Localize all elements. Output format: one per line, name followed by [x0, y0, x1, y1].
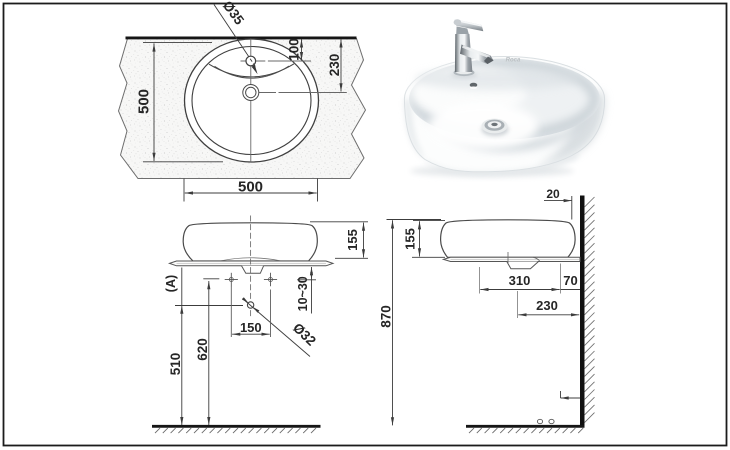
svg-text:510: 510	[168, 353, 183, 376]
svg-text:10~30: 10~30	[296, 276, 310, 311]
svg-text:230: 230	[327, 54, 342, 77]
svg-text:(A): (A)	[164, 275, 178, 292]
svg-text:310: 310	[509, 273, 531, 288]
svg-text:155: 155	[402, 228, 417, 250]
svg-text:155: 155	[345, 229, 360, 251]
svg-text:Roca: Roca	[506, 58, 521, 64]
svg-text:100: 100	[286, 38, 301, 61]
svg-text:20: 20	[546, 187, 560, 201]
svg-text:230: 230	[536, 298, 558, 313]
svg-text:500: 500	[135, 89, 152, 114]
svg-text:70: 70	[563, 273, 577, 288]
svg-text:500: 500	[238, 178, 263, 195]
svg-text:620: 620	[195, 338, 210, 361]
svg-text:150: 150	[240, 320, 262, 335]
svg-text:870: 870	[378, 305, 393, 328]
